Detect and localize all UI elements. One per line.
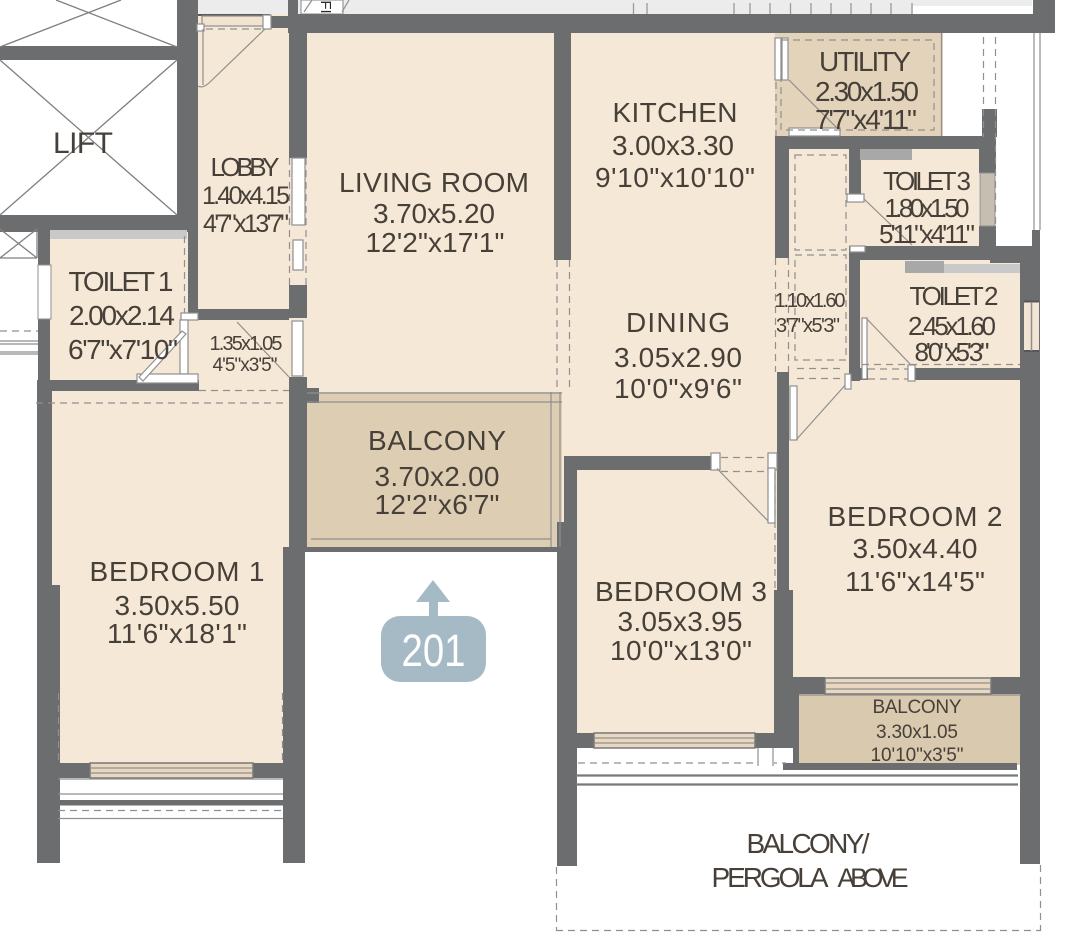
svg-text:12'2"x17'1": 12'2"x17'1" (366, 227, 505, 258)
svg-text:3'7"x5'3": 3'7"x5'3" (776, 315, 840, 337)
svg-text:PERGOLA: PERGOLA (712, 862, 829, 893)
svg-text:3.05x2.90: 3.05x2.90 (614, 342, 742, 373)
svg-text:BALCONY/: BALCONY/ (747, 828, 870, 859)
svg-text:9'10"x10'10": 9'10"x10'10" (595, 162, 755, 193)
svg-text:1.40x4.15: 1.40x4.15 (202, 182, 290, 210)
svg-text:3.70x2.00: 3.70x2.00 (375, 461, 500, 492)
svg-text:BEDROOM 2: BEDROOM 2 (828, 501, 1003, 532)
svg-text:ABOVE: ABOVE (838, 863, 909, 893)
svg-text:10'0"x9'6": 10'0"x9'6" (614, 373, 742, 404)
svg-text:LIFT: LIFT (53, 127, 113, 160)
svg-text:2.00x2.14: 2.00x2.14 (69, 300, 175, 331)
svg-text:BEDROOM 3: BEDROOM 3 (595, 576, 767, 607)
svg-text:3.50x4.40: 3.50x4.40 (853, 533, 978, 564)
svg-text:4'5"x3'5": 4'5"x3'5" (213, 355, 278, 376)
svg-text:11'6"x18'1": 11'6"x18'1" (107, 618, 247, 649)
svg-text:4'7"x13'7": 4'7"x13'7" (203, 210, 289, 238)
svg-text:11'6"x14'5": 11'6"x14'5" (845, 566, 985, 597)
svg-text:8'0"x5'3": 8'0"x5'3" (915, 337, 990, 367)
svg-text:BALCONY: BALCONY (368, 425, 506, 456)
svg-text:3.05x3.95: 3.05x3.95 (618, 606, 743, 637)
svg-text:LIVING ROOM: LIVING ROOM (339, 167, 529, 198)
svg-text:BEDROOM 1: BEDROOM 1 (90, 556, 265, 587)
svg-text:3.50x5.50: 3.50x5.50 (115, 590, 240, 621)
svg-text:TOILET 3: TOILET 3 (883, 166, 971, 196)
svg-text:3.00x3.30: 3.00x3.30 (612, 130, 734, 161)
svg-text:12'2"x6'7": 12'2"x6'7" (375, 489, 500, 520)
svg-text:2.30x1.50: 2.30x1.50 (815, 76, 919, 107)
svg-text:10'10"x3'5": 10'10"x3'5" (871, 745, 964, 766)
svg-text:6'7"x7'10": 6'7"x7'10" (68, 334, 178, 365)
svg-text:201: 201 (402, 625, 466, 676)
svg-text:7'7"x4'11": 7'7"x4'11" (815, 104, 917, 135)
svg-text:TOILET 2: TOILET 2 (910, 281, 999, 311)
svg-text:TOILET 1: TOILET 1 (69, 266, 174, 297)
svg-text:FI: FI (317, 0, 334, 13)
svg-text:3.70x5.20: 3.70x5.20 (373, 198, 495, 229)
svg-text:3.30x1.05: 3.30x1.05 (876, 722, 958, 743)
svg-text:UTILITY: UTILITY (819, 46, 911, 77)
svg-text:1.35x1.05: 1.35x1.05 (210, 333, 283, 355)
svg-text:BALCONY: BALCONY (873, 697, 962, 718)
svg-text:10'0"x13'0": 10'0"x13'0" (610, 635, 752, 666)
svg-text:5'11"x4'11": 5'11"x4'11" (879, 219, 975, 249)
svg-text:1.10x1.60: 1.10x1.60 (775, 290, 846, 312)
svg-text:LOBBY: LOBBY (211, 152, 280, 182)
svg-text:KITCHEN: KITCHEN (613, 97, 738, 128)
svg-text:DINING: DINING (626, 307, 730, 338)
